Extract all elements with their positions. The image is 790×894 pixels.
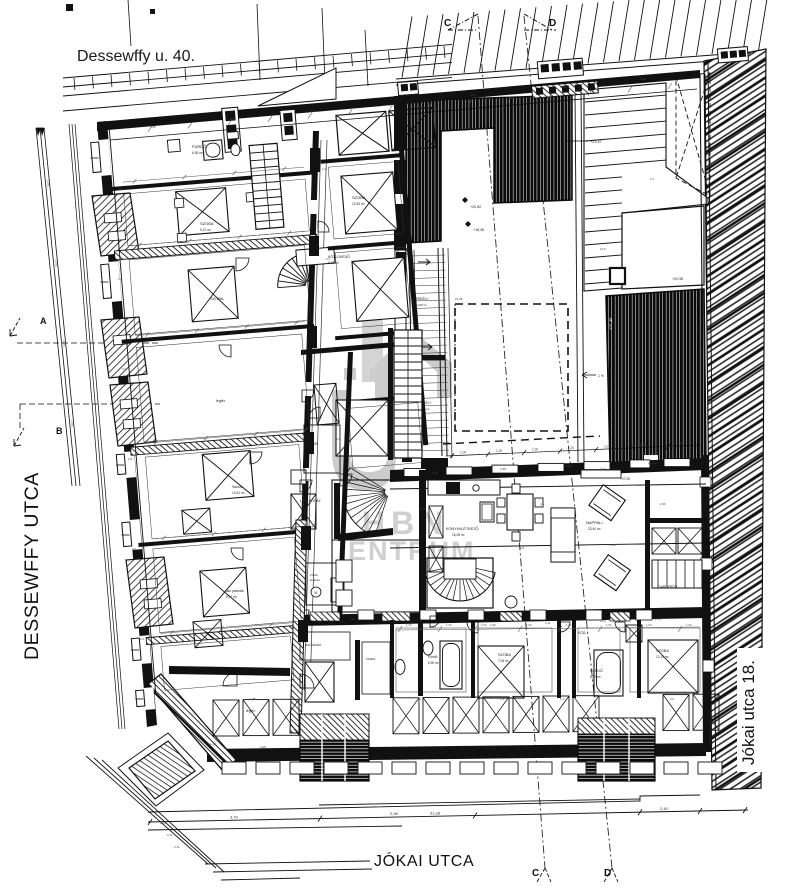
svg-text:1,00: 1,00 [676,441,682,445]
svg-text:3,79: 3,79 [230,814,239,819]
svg-text:FÜRDŐ: FÜRDŐ [192,144,206,149]
svg-text:2,02: 2,02 [54,260,59,267]
svg-text:7,2: 7,2 [650,177,654,181]
svg-text:2,40: 2,40 [310,109,316,113]
svg-text:1,4: 1,4 [420,697,424,701]
svg-text:2,45: 2,45 [640,77,646,81]
svg-text:+18,36: +18,36 [473,228,484,232]
svg-text:2,11: 2,11 [160,821,166,825]
svg-text:31,38: 31,38 [430,810,441,815]
svg-text:1,8: 1,8 [330,347,334,351]
svg-text:4,80 m²: 4,80 m² [417,303,427,307]
svg-text:KÖZLEKEDŐ: KÖZLEKEDŐ [328,254,350,259]
svg-text:+20,82: +20,82 [470,205,481,209]
svg-text:1,93: 1,93 [600,467,606,471]
svg-text:12,19 m²: 12,19 m² [656,655,669,659]
svg-text:légtér: légtér [216,399,226,403]
svg-text:1,85: 1,85 [250,697,256,701]
svg-text:légtér: légtér [246,709,256,713]
svg-text:13,30 m²: 13,30 m² [352,202,365,206]
svg-text:1,00: 1,00 [496,449,502,453]
svg-text:B: B [56,426,63,436]
svg-text:1,88: 1,88 [430,625,436,629]
svg-text:D: D [604,868,611,879]
svg-text:+22,98: +22,98 [672,277,683,281]
svg-text:DESSEWFFY UTCA: DESSEWFFY UTCA [21,472,43,660]
svg-text:1,40: 1,40 [432,471,438,475]
svg-text:1,00: 1,00 [604,445,610,449]
svg-text:KONYHA-ÉTKEZŐ: KONYHA-ÉTKEZŐ [446,526,479,531]
svg-text:6,36 m²: 6,36 m² [192,151,203,155]
svg-text:1,98: 1,98 [566,464,572,468]
svg-text:2,6: 2,6 [520,546,525,550]
svg-text:A: A [40,316,47,326]
svg-text:Fürdő: Fürdő [310,573,318,577]
svg-text:1,7: 1,7 [342,527,346,531]
svg-text:JÓKAI UTCA: JÓKAI UTCA [374,851,474,870]
svg-text:1,00: 1,00 [606,623,612,627]
svg-text:2,02: 2,02 [70,420,75,427]
svg-text:ELŐSZOBA: ELŐSZOBA [306,642,321,647]
svg-text:1,00: 1,00 [406,623,412,627]
svg-text:1,88: 1,88 [500,467,506,471]
svg-text:3,1: 3,1 [122,367,126,371]
svg-text:2,11: 2,11 [545,621,551,625]
svg-text:3,0: 3,0 [132,547,136,551]
svg-text:2,36: 2,36 [660,502,666,506]
svg-text:1,00: 1,00 [566,623,572,627]
svg-text:2,77: 2,77 [420,507,426,511]
svg-text:1,00: 1,00 [568,446,574,450]
svg-text:1,1: 1,1 [560,697,564,701]
svg-text:6,90 m²: 6,90 m² [428,661,439,665]
svg-text:2,9: 2,9 [118,277,122,281]
svg-text:C: C [444,18,451,29]
svg-text:1,00: 1,00 [646,623,652,627]
svg-text:2,98: 2,98 [390,811,399,816]
svg-text:C: C [532,868,539,879]
svg-text:SZOBA: SZOBA [352,195,366,200]
svg-text:pm 2H: pm 2H [648,461,657,465]
svg-text:Fürdő: Fürdő [428,655,437,659]
svg-text:6,37 m²: 6,37 m² [590,675,601,679]
svg-text:+21,47: +21,47 [590,140,602,144]
svg-text:ERKÉLY: ERKÉLY [416,296,429,301]
svg-text:2,36: 2,36 [662,542,668,546]
svg-text:2,46: 2,46 [490,623,496,627]
svg-text:2,40: 2,40 [660,806,669,811]
svg-text:9,47 m²: 9,47 m² [226,595,237,599]
svg-text:2,2: 2,2 [140,637,144,641]
svg-text:SZOBA: SZOBA [200,221,214,226]
svg-text:M: M [315,591,318,595]
svg-text:1,00: 1,00 [686,623,692,627]
svg-text:FÜRDŐ: FÜRDŐ [590,668,603,673]
svg-text:+27,26: +27,26 [620,477,630,481]
svg-text:23,40 m²: 23,40 m² [588,527,601,531]
svg-text:1,2: 1,2 [322,167,326,171]
svg-text:2,77: 2,77 [438,548,444,552]
svg-text:lam.parketta: lam.parketta [226,589,244,593]
svg-text:2,3: 2,3 [350,617,354,621]
svg-text:2,8: 2,8 [128,457,132,461]
svg-text:2,1: 2,1 [326,257,330,261]
svg-text:1,22: 1,22 [210,742,216,746]
svg-text:16,28 m²: 16,28 m² [452,533,465,537]
svg-text:1,00: 1,00 [446,623,452,627]
svg-text:1,9: 1,9 [500,697,504,701]
svg-text:6,98 m²: 6,98 m² [328,261,339,265]
svg-text:2,6: 2,6 [540,502,544,506]
svg-text:SZOBA: SZOBA [210,296,224,301]
svg-text:1,93: 1,93 [610,543,616,547]
svg-text:1 %: 1 % [598,374,604,378]
svg-text:1,00: 1,00 [460,451,466,455]
svg-text:2,21: 2,21 [470,93,476,97]
svg-text:3,08: 3,08 [560,85,566,89]
svg-text:1,00: 1,00 [640,443,646,447]
svg-text:Dessewffy u. 40.: Dessewffy u. 40. [77,48,195,65]
svg-text:2,40: 2,40 [655,617,661,621]
svg-text:1,00: 1,00 [481,623,487,627]
svg-text:KÖZL.: KÖZL. [578,631,587,635]
svg-text:+21,46: +21,46 [608,317,613,330]
svg-text:9,21 m²: 9,21 m² [200,228,211,232]
svg-text:SZOBA: SZOBA [498,653,511,657]
svg-text:Szoba: Szoba [232,485,244,489]
svg-text:21,38: 21,38 [455,297,463,301]
svg-text:1,00: 1,00 [526,623,532,627]
svg-text:12,61 m²: 12,61 m² [232,491,245,495]
svg-text:1,00: 1,00 [532,448,538,452]
svg-text:1,00: 1,00 [390,103,396,107]
svg-text:NAPPALI: NAPPALI [586,520,603,525]
svg-text:Jókai utca 18.: Jókai utca 18. [739,660,758,765]
svg-text:3,5: 3,5 [118,187,122,191]
svg-text:2,02: 2,02 [46,180,51,187]
svg-text:2,0: 2,0 [336,437,340,441]
svg-text:12,5: 12,5 [600,247,606,251]
svg-text:2,11: 2,11 [167,833,173,837]
svg-text:2,98: 2,98 [260,745,266,749]
svg-text:SZOBA: SZOBA [656,649,669,653]
svg-text:KAMRA: KAMRA [366,657,375,661]
svg-text:7,05 m²: 7,05 m² [498,659,509,663]
svg-text:kerámia: kerámia [310,578,320,582]
svg-text:2,11: 2,11 [174,845,180,849]
svg-text:GARDERÓB: GARDERÓB [658,584,678,589]
svg-text:D: D [549,18,556,29]
svg-text:2,0: 2,0 [670,697,674,701]
